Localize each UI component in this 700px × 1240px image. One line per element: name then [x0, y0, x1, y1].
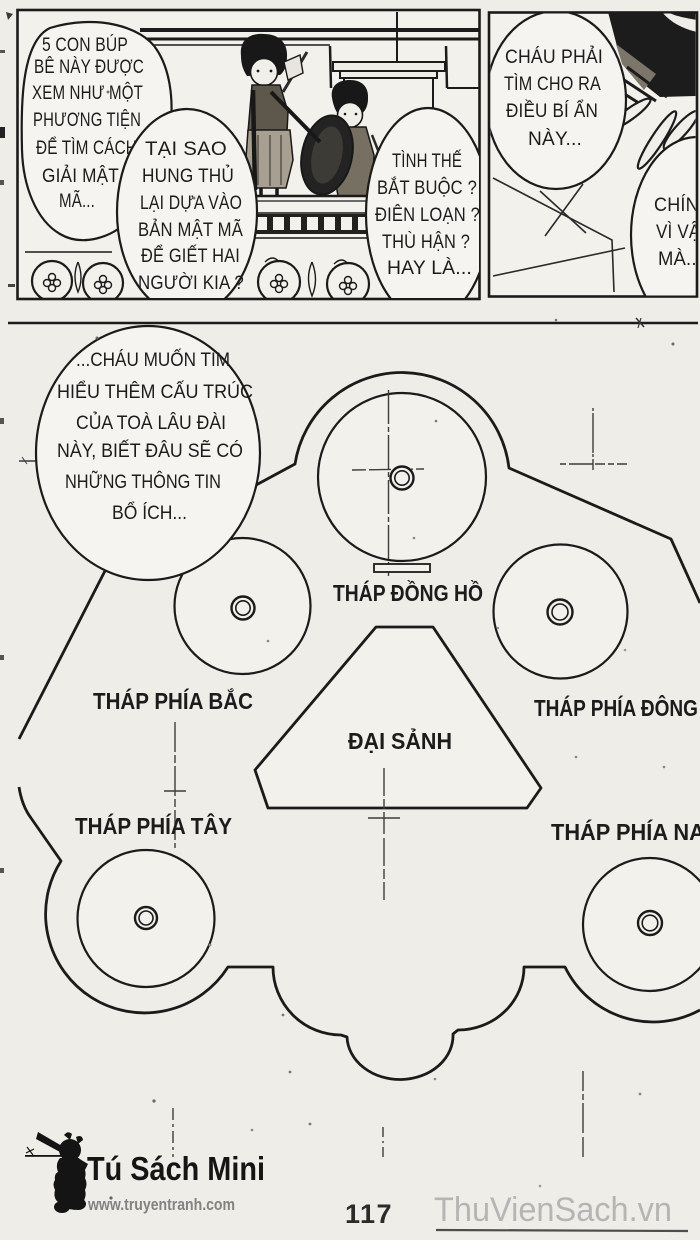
svg-text:GIẢI MẬT: GIẢI MẬT: [42, 165, 119, 187]
svg-text:THÙ HẬN ?: THÙ HẬN ?: [382, 231, 470, 253]
svg-text:www.truyentranh.com: www.truyentranh.com: [87, 1195, 235, 1214]
svg-text:HUNG THỦ: HUNG THỦ: [142, 165, 234, 187]
svg-text:...CHÁU MUỐN TÌM: ...CHÁU MUỐN TÌM: [76, 347, 230, 371]
svg-text:NÀY, BIẾT ĐÂU SẼ CÓ: NÀY, BIẾT ĐÂU SẼ CÓ: [57, 438, 243, 462]
svg-text:TẠI SAO: TẠI SAO: [145, 139, 227, 160]
svg-text:MÀ...: MÀ...: [658, 249, 700, 270]
svg-text:Tú Sách Mini: Tú Sách Mini: [87, 1150, 265, 1187]
svg-text:VÌ VẬY: VÌ VẬY: [656, 221, 700, 243]
svg-text:HIỂU THÊM CẤU TRÚC: HIỂU THÊM CẤU TRÚC: [57, 380, 253, 403]
svg-text:THÁP PHÍA TÂY: THÁP PHÍA TÂY: [75, 812, 232, 839]
svg-text:CHÍNH: CHÍNH: [654, 195, 700, 216]
svg-text:TÌM CHO RA: TÌM CHO RA: [504, 74, 601, 95]
svg-text:BẢN MẬT MÃ: BẢN MẬT MÃ: [138, 219, 243, 241]
svg-text:ThuVienSach.vn: ThuVienSach.vn: [434, 1191, 672, 1229]
svg-text:MÃ...: MÃ...: [59, 190, 95, 212]
svg-text:ĐỂ TÌM CÁCH: ĐỂ TÌM CÁCH: [36, 137, 137, 159]
svg-text:117: 117: [345, 1199, 393, 1229]
svg-text:THÁP PHÍA BẮC: THÁP PHÍA BẮC: [93, 687, 253, 714]
svg-text:NHỮNG THÔNG TIN: NHỮNG THÔNG TIN: [65, 469, 221, 493]
svg-text:CỦA TOÀ LÂU ĐÀI: CỦA TOÀ LÂU ĐÀI: [76, 410, 226, 434]
svg-text:ĐIÊN LOẠN ?: ĐIÊN LOẠN ?: [375, 204, 480, 226]
svg-text:NGƯỜI KIA ?: NGƯỜI KIA ?: [138, 272, 244, 294]
svg-text:XEM NHƯ MỘT: XEM NHƯ MỘT: [32, 82, 143, 104]
svg-text:PHƯƠNG TIỆN: PHƯƠNG TIỆN: [33, 109, 141, 131]
svg-text:5 CON BÚP: 5 CON BÚP: [42, 34, 128, 56]
svg-text:HAY LÀ...: HAY LÀ...: [387, 258, 472, 279]
svg-text:LẠI DỰA VÀO: LẠI DỰA VÀO: [140, 193, 242, 214]
svg-text:THÁP PHÍA ĐÔNG: THÁP PHÍA ĐÔNG: [534, 694, 698, 721]
svg-text:BÊ NÀY ĐƯỢC: BÊ NÀY ĐƯỢC: [34, 56, 144, 78]
svg-text:BỔ ÍCH...: BỔ ÍCH...: [112, 500, 187, 524]
svg-text:NÀY...: NÀY...: [528, 129, 582, 150]
svg-text:TÌNH THẾ: TÌNH THẾ: [392, 150, 462, 172]
svg-text:ĐẠI SẢNH: ĐẠI SẢNH: [348, 726, 452, 754]
svg-text:CHÁU PHẢI: CHÁU PHẢI: [505, 46, 603, 68]
svg-text:THÁP PHÍA NAM: THÁP PHÍA NAM: [551, 818, 700, 845]
svg-text:THÁP ĐỒNG HỒ: THÁP ĐỒNG HỒ: [333, 579, 483, 606]
svg-text:ĐỂ GIẾT HAI: ĐỂ GIẾT HAI: [141, 245, 240, 267]
svg-text:ĐIỀU BÍ ẨN: ĐIỀU BÍ ẨN: [506, 100, 598, 122]
svg-text:BẮT BUỘC ?: BẮT BUỘC ?: [377, 177, 477, 199]
